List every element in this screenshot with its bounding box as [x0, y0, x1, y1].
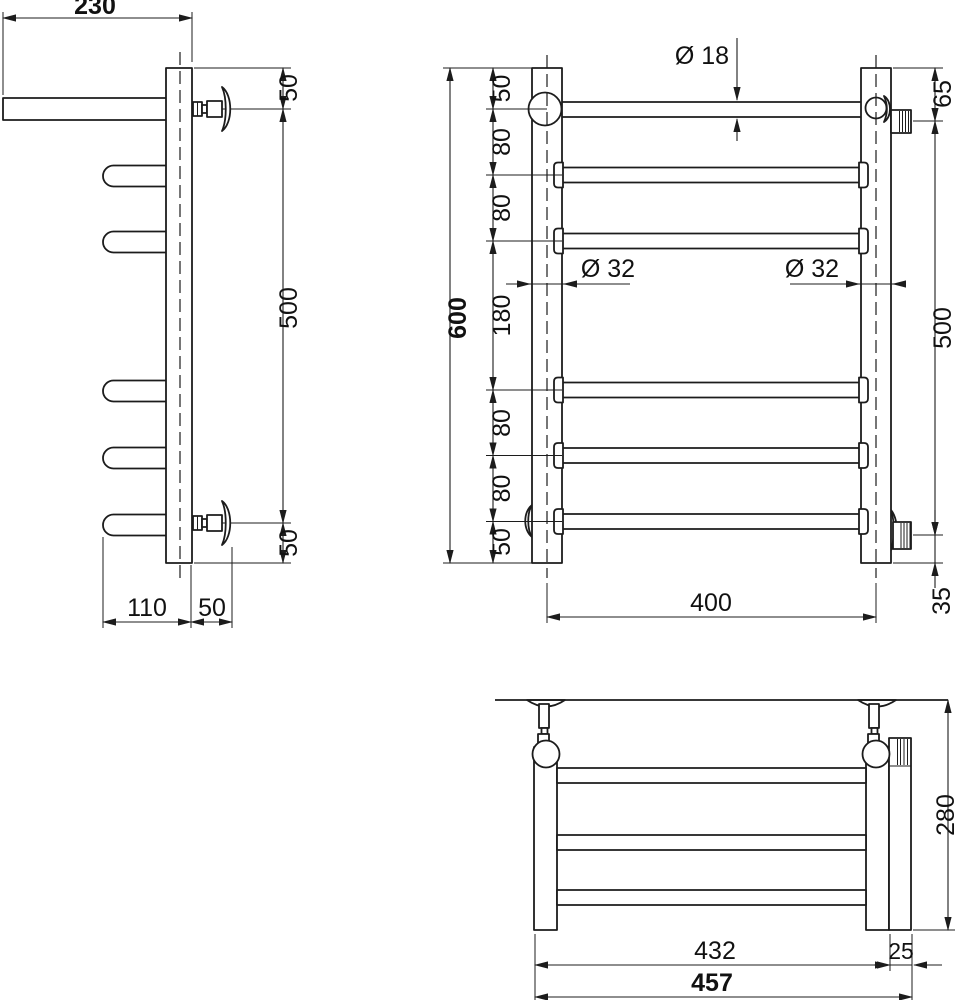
- dim-front-seg-6: 80: [488, 475, 516, 503]
- rung-collar: [859, 163, 868, 188]
- joint-ball-right: [863, 741, 890, 768]
- rung-profile: [103, 515, 170, 536]
- rung-profile: [103, 166, 170, 187]
- top-view: 280 432 25 457: [495, 700, 960, 1000]
- dim-side-top-offset: 50: [275, 74, 303, 102]
- joint-ball-left: [533, 741, 560, 768]
- shelf-bar: [557, 768, 866, 783]
- bracket-stem: [869, 704, 879, 728]
- dim-front-total-height: 600: [444, 297, 472, 339]
- rung: [562, 383, 861, 398]
- dim-front-seg-top: 50: [488, 75, 516, 103]
- dim-front-post-diameter-right: Ø 32: [785, 255, 839, 283]
- dim-front-fitting-bottom: 35: [928, 587, 956, 615]
- side-view: 230 50 500 50 110 50: [3, 0, 303, 628]
- front-view: 600 50 80 80 180 80 80 50 400 65: [443, 38, 957, 623]
- dim-front-seg-2: 80: [488, 128, 516, 156]
- dim-front-rung-diameter: Ø 18: [675, 42, 729, 70]
- dim-front-seg-3: 80: [488, 194, 516, 222]
- rung: [562, 448, 861, 463]
- dim-top-total-width: 457: [691, 969, 733, 997]
- rung-profile: [103, 448, 170, 469]
- rung-collar: [859, 378, 868, 403]
- rung-profile: [103, 381, 170, 402]
- dim-top-body-width: 432: [694, 937, 736, 965]
- dim-top-depth: 280: [932, 794, 960, 836]
- dim-front-post-diameter-left: Ø 32: [581, 255, 635, 283]
- dim-side-bottom-offset: 50: [275, 529, 303, 557]
- shelf-bar: [557, 835, 866, 850]
- shelf-profile: [3, 98, 170, 120]
- shelf-rail-right: [866, 747, 889, 930]
- dim-front-seg-bottom: 50: [488, 528, 516, 556]
- dim-side-bracket-span: 500: [275, 287, 303, 329]
- rung: [562, 514, 861, 529]
- heating-element-housing: [889, 738, 911, 930]
- dim-front-fitting-span: 500: [929, 307, 957, 349]
- bracket-body: [207, 101, 222, 117]
- shelf-bar: [557, 890, 866, 905]
- dim-side-rung-depth: 110: [127, 594, 167, 622]
- top-rung: [545, 102, 876, 117]
- rung-collar: [859, 229, 868, 254]
- bottom-fitting: [893, 522, 911, 549]
- dim-side-bracket-depth: 50: [198, 594, 226, 622]
- dim-front-seg-mid: 180: [488, 295, 516, 337]
- towel-rail-technical-drawing: 230 50 500 50 110 50: [0, 0, 966, 1000]
- rung-profile: [103, 232, 170, 253]
- dim-side-shelf-depth: 230: [74, 0, 116, 20]
- rung-collar: [859, 509, 868, 534]
- rung: [562, 234, 861, 249]
- post-profile: [166, 68, 192, 563]
- bracket-body: [207, 515, 222, 531]
- shelf-rail-left: [534, 747, 557, 930]
- dim-front-seg-5: 80: [488, 409, 516, 437]
- bracket-stem: [539, 704, 549, 728]
- rung-collar: [859, 443, 868, 468]
- dim-front-fitting-top: 65: [929, 80, 957, 108]
- dim-front-rail-span: 400: [690, 589, 732, 617]
- rung: [562, 168, 861, 183]
- dim-top-element-width: 25: [888, 938, 914, 964]
